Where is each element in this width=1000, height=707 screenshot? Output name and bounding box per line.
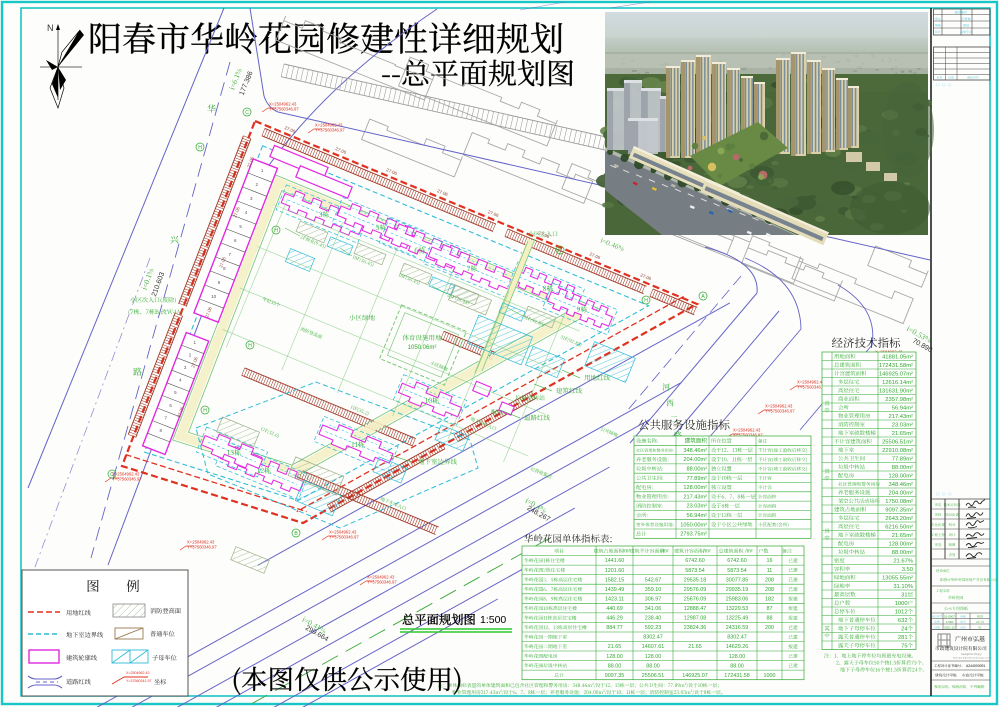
svg-text:/m²: /m² bbox=[661, 549, 669, 555]
svg-text:Y=37560341.97: Y=37560341.97 bbox=[126, 679, 151, 683]
svg-text:87: 87 bbox=[767, 606, 773, 612]
svg-text:77.89m²: 77.89m² bbox=[892, 456, 913, 462]
svg-text:217.43m²: 217.43m² bbox=[683, 494, 707, 500]
svg-text:128.00: 128.00 bbox=[606, 654, 623, 660]
svg-text:30077.85: 30077.85 bbox=[726, 577, 748, 583]
svg-text:88.00: 88.00 bbox=[608, 663, 622, 669]
svg-text:440.69: 440.69 bbox=[606, 606, 623, 612]
svg-text:128.00: 128.00 bbox=[645, 654, 662, 660]
svg-text:6742.60: 6742.60 bbox=[685, 558, 705, 564]
svg-text:146925.07: 146925.07 bbox=[682, 673, 707, 679]
svg-text:H: H bbox=[203, 408, 207, 414]
svg-text:884.77: 884.77 bbox=[606, 625, 623, 631]
svg-text:1000: 1000 bbox=[895, 601, 908, 607]
svg-text:Guangzhou Hong ji: Guangzhou Hong ji bbox=[961, 653, 982, 656]
svg-text:1582.15: 1582.15 bbox=[605, 577, 625, 583]
svg-text:16: 16 bbox=[767, 558, 773, 564]
svg-text:22910.08m²: 22910.08m² bbox=[882, 448, 913, 454]
svg-text:1000: 1000 bbox=[764, 673, 776, 679]
svg-text:12888.47: 12888.47 bbox=[684, 606, 706, 612]
svg-text:X=2504962.43: X=2504962.43 bbox=[126, 671, 149, 675]
svg-text:6216.50m²: 6216.50m² bbox=[885, 524, 913, 530]
svg-text:21.65: 21.65 bbox=[608, 644, 622, 650]
svg-text:128.00m²: 128.00m² bbox=[889, 541, 914, 547]
svg-text:23.03m²: 23.03m² bbox=[686, 504, 707, 510]
svg-text:Y=37560346.97: Y=37560346.97 bbox=[315, 128, 345, 133]
svg-text:23824.36: 23824.36 bbox=[684, 625, 706, 631]
svg-text:131631.90m²: 131631.90m² bbox=[879, 388, 913, 394]
svg-text:14607.61: 14607.61 bbox=[642, 644, 664, 650]
svg-text:A244000091: A244000091 bbox=[966, 664, 985, 668]
svg-text:204.00m²: 204.00m² bbox=[889, 490, 914, 496]
svg-text:21.65m²: 21.65m² bbox=[892, 533, 913, 539]
svg-text:75: 75 bbox=[901, 643, 907, 649]
svg-text:41881.05m²: 41881.05m² bbox=[882, 354, 913, 360]
svg-text:H: H bbox=[248, 343, 252, 349]
svg-text:182: 182 bbox=[765, 597, 774, 603]
svg-text:10: 10 bbox=[211, 294, 217, 299]
svg-text:1750.08m²: 1750.08m² bbox=[885, 499, 913, 505]
svg-text:31: 31 bbox=[901, 592, 907, 598]
svg-text:N: N bbox=[47, 23, 54, 33]
svg-text:H: H bbox=[644, 298, 648, 304]
svg-text:9097.35: 9097.35 bbox=[605, 673, 625, 679]
svg-text:1050.00m²: 1050.00m² bbox=[680, 522, 707, 528]
svg-text:341.06: 341.06 bbox=[645, 606, 662, 612]
svg-text:14629.26: 14629.26 bbox=[726, 644, 748, 650]
svg-text:146925.07m²: 146925.07m² bbox=[879, 371, 913, 377]
svg-text:31.10%: 31.10% bbox=[893, 584, 913, 590]
svg-text:H: H bbox=[558, 248, 562, 254]
svg-text:446.29: 446.29 bbox=[606, 616, 623, 622]
svg-text:25676.09: 25676.09 bbox=[684, 597, 706, 603]
svg-text:1423.11: 1423.11 bbox=[605, 597, 624, 603]
svg-text:128.00m²: 128.00m² bbox=[889, 473, 914, 479]
svg-text:Y=37560346.97: Y=37560346.97 bbox=[269, 107, 299, 112]
svg-text:29935.19: 29935.19 bbox=[726, 587, 748, 593]
svg-text:1050.06m²: 1050.06m² bbox=[408, 345, 437, 351]
svg-text:C: C bbox=[245, 110, 249, 116]
svg-text:25983.06: 25983.06 bbox=[726, 597, 748, 603]
svg-text:238.40: 238.40 bbox=[645, 616, 662, 622]
svg-text:Y=37560346.97: Y=37560346.97 bbox=[187, 545, 217, 550]
svg-text:3.50: 3.50 bbox=[902, 567, 913, 573]
svg-text:1012: 1012 bbox=[895, 609, 908, 615]
svg-text:1201.60: 1201.60 bbox=[605, 568, 625, 574]
svg-text:24316.59: 24316.59 bbox=[726, 625, 748, 631]
svg-text:204.00m²: 204.00m² bbox=[683, 457, 707, 463]
svg-text:25506.51: 25506.51 bbox=[642, 673, 664, 679]
svg-text:13055.55m²: 13055.55m² bbox=[882, 575, 913, 581]
svg-text:13225.49: 13225.49 bbox=[726, 616, 748, 622]
svg-text:H: H bbox=[198, 145, 202, 151]
svg-text:592.23: 592.23 bbox=[645, 625, 662, 631]
svg-text:281: 281 bbox=[898, 635, 908, 641]
svg-text:5873.54: 5873.54 bbox=[685, 568, 705, 574]
svg-text:88.00m²: 88.00m² bbox=[892, 465, 913, 471]
svg-text:348.46m²: 348.46m² bbox=[889, 482, 914, 488]
svg-text:359.10: 359.10 bbox=[645, 587, 662, 593]
svg-text:1439.49: 1439.49 bbox=[605, 587, 625, 593]
svg-text:88.00: 88.00 bbox=[646, 663, 660, 669]
svg-text:2793.75m²: 2793.75m² bbox=[680, 532, 707, 538]
svg-text:Y=37560346.97: Y=37560346.97 bbox=[765, 409, 795, 414]
svg-text:C: C bbox=[110, 472, 114, 478]
svg-text:21.65: 21.65 bbox=[688, 644, 702, 650]
svg-text:51-0907: 51-0907 bbox=[944, 615, 955, 619]
svg-text:Y=37560346.97: Y=37560346.97 bbox=[329, 535, 359, 540]
svg-text:H: H bbox=[274, 228, 278, 234]
svg-text:632: 632 bbox=[898, 618, 908, 624]
svg-text:2643.20m²: 2643.20m² bbox=[885, 516, 913, 522]
svg-text:11: 11 bbox=[767, 568, 773, 574]
svg-text:208: 208 bbox=[765, 577, 774, 583]
svg-text:217.43m²: 217.43m² bbox=[889, 414, 914, 420]
svg-text:21.67%: 21.67% bbox=[893, 558, 913, 564]
svg-text:128.00m²: 128.00m² bbox=[683, 485, 707, 491]
svg-text:21.65m²: 21.65m² bbox=[892, 431, 913, 437]
svg-text:8302.47: 8302.47 bbox=[643, 635, 663, 641]
svg-text:2021.12: 2021.12 bbox=[944, 626, 955, 630]
svg-text:6742.60: 6742.60 bbox=[727, 558, 747, 564]
svg-text:88.00m²: 88.00m² bbox=[686, 467, 707, 473]
svg-text:1:500: 1:500 bbox=[480, 614, 506, 626]
svg-text:Y=37560346.97: Y=37560346.97 bbox=[367, 580, 397, 585]
svg-text:9097.35m²: 9097.35m² bbox=[885, 507, 913, 513]
svg-text:23.03m²: 23.03m² bbox=[892, 422, 913, 428]
svg-text:/m²: /m² bbox=[623, 549, 631, 555]
svg-text:/m²: /m² bbox=[745, 549, 753, 555]
svg-text:5873.54: 5873.54 bbox=[727, 568, 747, 574]
svg-text:172431.58: 172431.58 bbox=[724, 673, 749, 679]
svg-text:建筑面积: 建筑面积 bbox=[685, 437, 708, 445]
svg-text:77.89m²: 77.89m² bbox=[686, 476, 707, 482]
svg-text:12616.14m²: 12616.14m² bbox=[882, 380, 913, 386]
svg-text:348.46m²: 348.46m² bbox=[683, 448, 707, 454]
svg-text:56.94m²: 56.94m² bbox=[892, 405, 913, 411]
svg-text:88.00m²: 88.00m² bbox=[892, 550, 913, 556]
svg-text:25506.51m²: 25506.51m² bbox=[882, 439, 913, 445]
svg-text:56.94m²: 56.94m² bbox=[686, 513, 707, 519]
svg-text:172431.58m²: 172431.58m² bbox=[879, 363, 913, 369]
svg-text:128.00: 128.00 bbox=[729, 654, 746, 660]
svg-text:1441.60: 1441.60 bbox=[605, 558, 625, 564]
svg-text:12987.08: 12987.08 bbox=[684, 616, 706, 622]
svg-text:542.67: 542.67 bbox=[645, 577, 662, 583]
svg-text:208: 208 bbox=[765, 587, 774, 593]
svg-text:Municipal & Architectural Desi: Municipal & Architectural Design Co.Ltd bbox=[953, 657, 992, 660]
svg-text:29535.18: 29535.18 bbox=[684, 577, 706, 583]
svg-text:Y=37560346.97: Y=37560346.97 bbox=[112, 477, 142, 482]
svg-text:200: 200 bbox=[765, 625, 774, 631]
svg-text:306.97: 306.97 bbox=[645, 597, 662, 603]
svg-text:88: 88 bbox=[767, 616, 773, 622]
svg-text:13229.53: 13229.53 bbox=[726, 606, 748, 612]
svg-text:/m²: /m² bbox=[703, 549, 711, 555]
svg-text:1:500: 1:500 bbox=[946, 620, 954, 624]
svg-text:88.00: 88.00 bbox=[730, 663, 744, 669]
svg-text:2357.98m²: 2357.98m² bbox=[885, 397, 913, 403]
svg-text:8302.47: 8302.47 bbox=[727, 635, 747, 641]
svg-text:29576.09: 29576.09 bbox=[684, 587, 706, 593]
svg-text:24: 24 bbox=[901, 626, 908, 632]
